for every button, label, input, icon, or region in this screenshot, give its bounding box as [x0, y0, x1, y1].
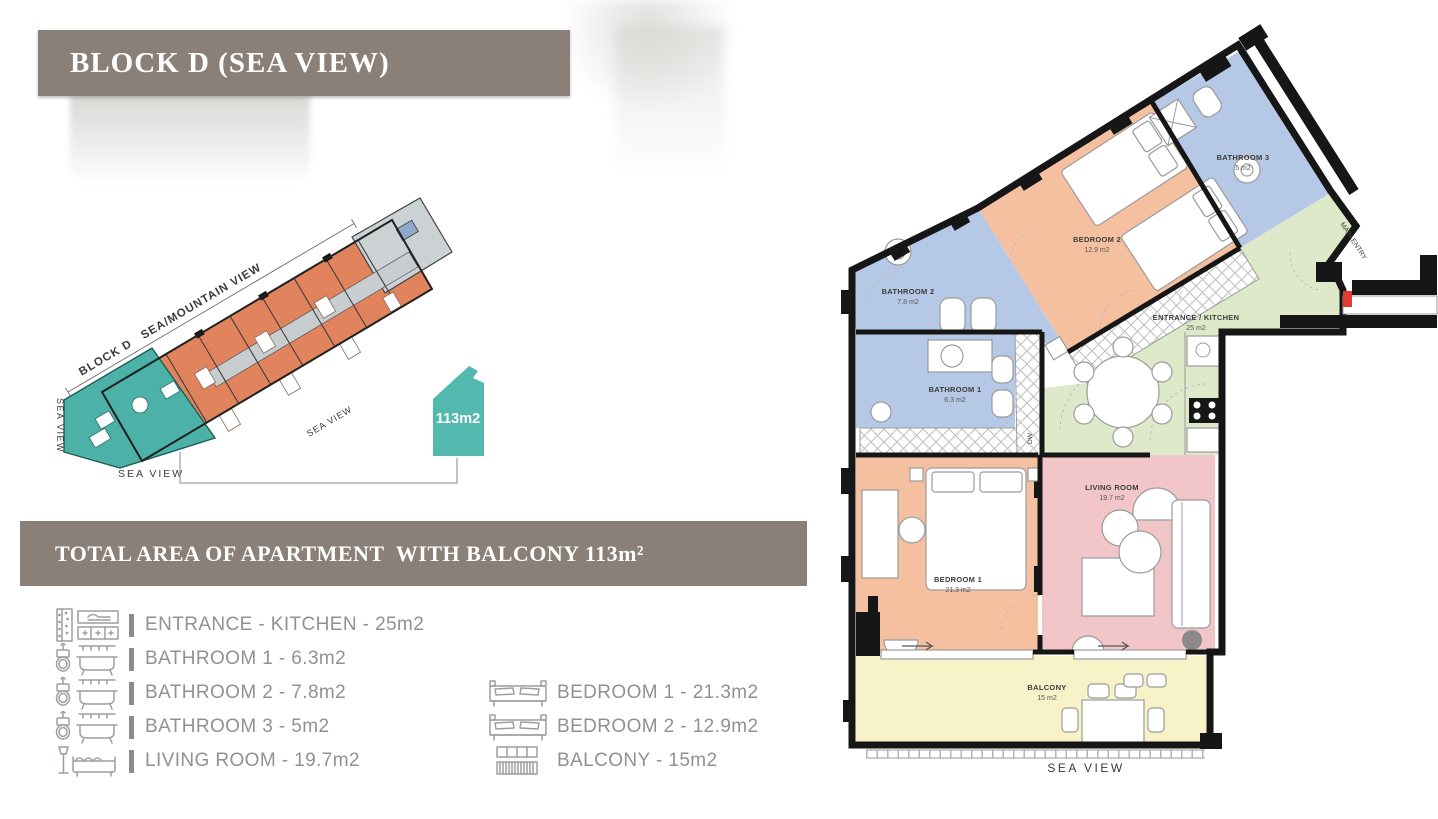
wardrobe-band-horizontal [860, 428, 1017, 455]
legend-separator [129, 614, 134, 637]
bathroom-icon [55, 641, 121, 677]
svg-text:15 m2: 15 m2 [1037, 695, 1057, 702]
label-bathroom-2: BATHROOM 2 [882, 287, 935, 296]
background-artifact [562, 0, 734, 112]
background-artifact [70, 95, 310, 187]
sea-view-bottom-label: SEA VIEW [118, 468, 184, 480]
badge-leader-line [180, 452, 457, 483]
svg-text:12.9 m2: 12.9 m2 [1084, 247, 1109, 254]
svg-text:7.8 m2: 7.8 m2 [897, 299, 919, 306]
background-artifact [616, 26, 724, 178]
area-badge: 113m2 [433, 366, 484, 456]
bed-icon [487, 675, 549, 711]
label-bathroom-1: BATHROOM 1 [929, 385, 982, 394]
legend-label: ENTRANCE - KITCHEN - 25m2 [145, 614, 424, 636]
svg-text:21.3 m2: 21.3 m2 [945, 587, 970, 594]
legend-separator [129, 682, 134, 705]
legend-label: BEDROOM 2 - 12.9m2 [557, 716, 758, 738]
living-room-icon [55, 743, 121, 779]
svg-text:6.3 m2: 6.3 m2 [944, 397, 966, 404]
label-bedroom-2: BEDROOM 2 [1073, 235, 1121, 244]
total-area-bar: TOTAL AREA OF APARTMENT WITH BALCONY 113… [20, 521, 807, 586]
legend-item-bedroom-1: BEDROOM 1 - 21.3m2 [487, 676, 758, 710]
sea-view-diagonal-label: SEA VIEW [305, 404, 354, 439]
entry-door-marker [1343, 291, 1352, 307]
legend-label: BATHROOM 3 - 5m2 [145, 716, 329, 738]
svg-text:25 m2: 25 m2 [1186, 325, 1206, 332]
label-living-room: LIVING ROOM [1085, 483, 1139, 492]
area-badge-text: 113m2 [436, 411, 480, 427]
label-entrance-kitchen: ENTRANCE / KITCHEN [1153, 313, 1240, 322]
legend-label: BATHROOM 2 - 7.8m2 [145, 682, 346, 704]
bathroom-icon [55, 675, 121, 711]
legend-item-balcony: BALCONY - 15m2 [487, 744, 758, 778]
legend-item-bathroom-2: BATHROOM 2 - 7.8m2 [55, 676, 424, 710]
svg-text:19.7 m2: 19.7 m2 [1099, 495, 1124, 502]
site-plan-building [64, 198, 452, 468]
entrance-kitchen-icon [55, 607, 121, 643]
legend-left-column: ENTRANCE - KITCHEN - 25m2 BATHROOM 1 - 6… [55, 608, 424, 778]
label-balcony: BALCONY [1027, 683, 1066, 692]
legend-label: BALCONY - 15m2 [557, 750, 717, 772]
label-dw: DW [1027, 432, 1034, 444]
label-bedroom-1: BEDROOM 1 [934, 575, 982, 584]
label-sea-view: SEA VIEW [1047, 761, 1124, 775]
legend-label: BEDROOM 1 - 21.3m2 [557, 682, 758, 704]
legend-item-living-room: LIVING ROOM - 19.7m2 [55, 744, 424, 778]
legend-item-bathroom-3: BATHROOM 3 - 5m2 [55, 710, 424, 744]
brochure-page: BLOCK D (SEA VIEW) TOTAL AREA OF APARTME… [0, 0, 1438, 819]
legend-separator [129, 716, 134, 739]
sea-view-left-label: SEA VIEW [55, 398, 65, 453]
total-area-text: TOTAL AREA OF APARTMENT WITH BALCONY 113… [55, 541, 644, 567]
legend-item-bedroom-2: BEDROOM 2 - 12.9m2 [487, 710, 758, 744]
page-title: BLOCK D (SEA VIEW) [70, 47, 390, 80]
floor-plan: BATHROOM 2 7.8 m2 BATHROOM 1 6.3 m2 BEDR… [830, 15, 1438, 795]
site-plan: BLOCK D SEA/MOUNTAIN VIEW SEA VIEW SEA V… [40, 185, 540, 500]
page-title-bar: BLOCK D (SEA VIEW) [38, 30, 570, 96]
label-bathroom-3: BATHROOM 3 [1217, 153, 1270, 162]
svg-text:5 m2: 5 m2 [1235, 165, 1251, 172]
bed-icon [487, 709, 549, 745]
legend-right-column: BEDROOM 1 - 21.3m2 BEDROOM 2 - 12.9m2 BA… [487, 676, 758, 778]
legend-separator [129, 648, 134, 671]
legend-label: LIVING ROOM - 19.7m2 [145, 750, 360, 772]
legend-label: BATHROOM 1 - 6.3m2 [145, 648, 346, 670]
legend-item-entrance-kitchen: ENTRANCE - KITCHEN - 25m2 [55, 608, 424, 642]
balcony-icon [487, 743, 549, 779]
bathroom-icon [55, 709, 121, 745]
legend-separator [129, 750, 134, 773]
legend-item-bathroom-1: BATHROOM 1 - 6.3m2 [55, 642, 424, 676]
